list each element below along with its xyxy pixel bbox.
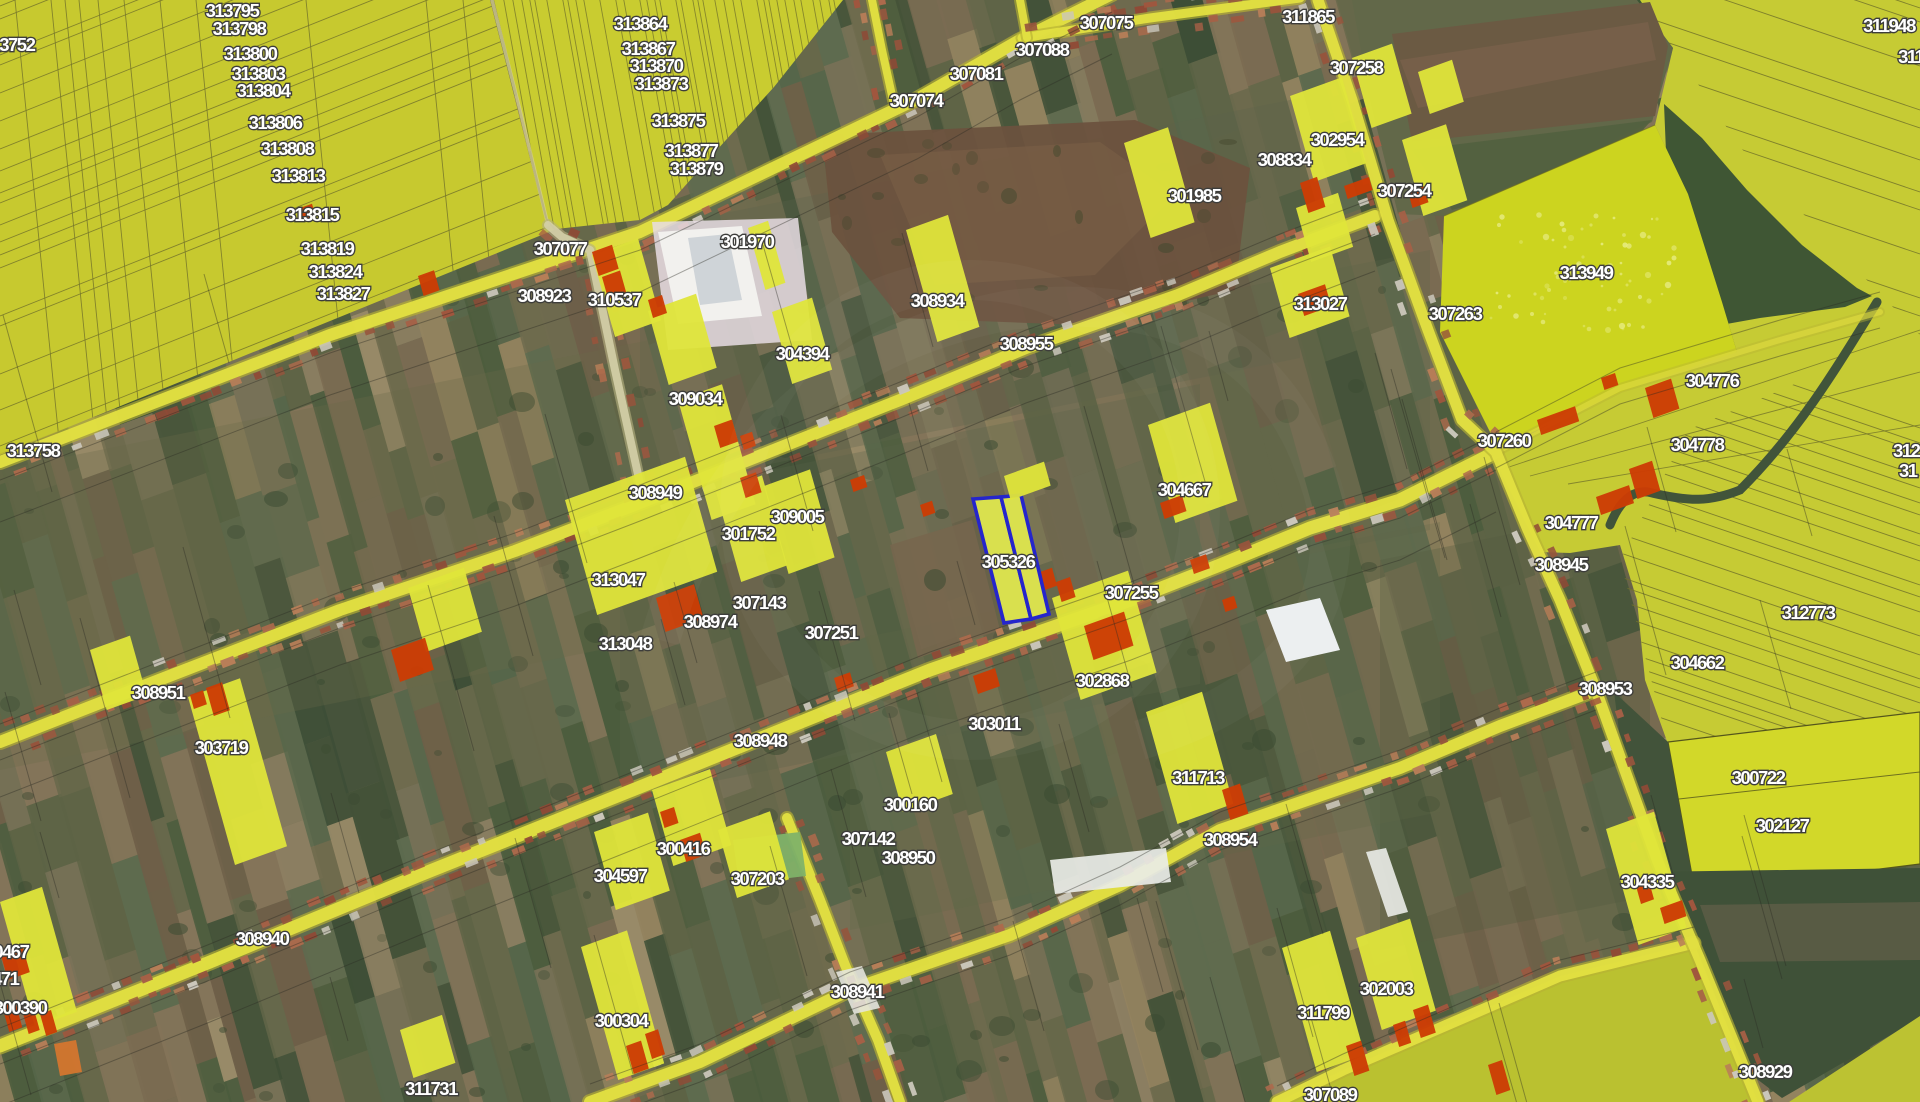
- svg-text:308929: 308929: [1739, 1061, 1793, 1082]
- svg-text:308949: 308949: [629, 482, 683, 503]
- svg-text:313819: 313819: [301, 238, 355, 259]
- svg-text:313875: 313875: [652, 110, 706, 131]
- svg-text:308954: 308954: [1204, 829, 1259, 850]
- svg-text:307142: 307142: [842, 828, 896, 849]
- svg-text:313827: 313827: [317, 283, 371, 304]
- svg-text:308945: 308945: [1535, 554, 1589, 575]
- svg-text:311948: 311948: [1863, 15, 1916, 36]
- svg-text:307203: 307203: [731, 868, 785, 889]
- svg-text:308940: 308940: [236, 928, 290, 949]
- svg-text:303719: 303719: [195, 737, 249, 758]
- svg-text:313758: 313758: [7, 440, 61, 461]
- svg-text:300471: 300471: [0, 968, 20, 989]
- svg-text:308934: 308934: [911, 290, 966, 311]
- svg-text:308950: 308950: [882, 847, 936, 868]
- svg-text:301970: 301970: [721, 231, 775, 252]
- svg-text:307260: 307260: [1478, 430, 1532, 451]
- svg-text:313804: 313804: [237, 80, 292, 101]
- svg-text:313798: 313798: [213, 18, 267, 39]
- svg-text:305326: 305326: [982, 551, 1036, 572]
- svg-text:313949: 313949: [1560, 262, 1614, 283]
- svg-text:311713: 311713: [1172, 767, 1225, 788]
- svg-text:312: 312: [1893, 440, 1920, 461]
- svg-text:302868: 302868: [1076, 670, 1130, 691]
- svg-text:307251: 307251: [805, 622, 859, 643]
- svg-text:308953: 308953: [1579, 678, 1633, 699]
- svg-text:308941: 308941: [831, 981, 885, 1002]
- svg-text:313824: 313824: [309, 261, 364, 282]
- svg-text:313752: 313752: [0, 34, 36, 55]
- svg-text:304394: 304394: [776, 343, 831, 364]
- svg-text:311731: 311731: [405, 1078, 458, 1099]
- svg-text:307143: 307143: [733, 592, 787, 613]
- svg-text:307075: 307075: [1080, 12, 1134, 33]
- svg-text:313864: 313864: [614, 13, 669, 34]
- svg-text:308834: 308834: [1258, 149, 1313, 170]
- svg-text:307077: 307077: [534, 238, 588, 259]
- svg-text:307263: 307263: [1429, 303, 1483, 324]
- svg-text:313806: 313806: [249, 112, 303, 133]
- svg-text:308948: 308948: [734, 730, 788, 751]
- svg-text:307258: 307258: [1330, 57, 1384, 78]
- svg-text:304777: 304777: [1545, 512, 1599, 533]
- svg-text:313815: 313815: [286, 204, 340, 225]
- svg-text:300416: 300416: [657, 838, 711, 859]
- svg-text:313873: 313873: [635, 73, 689, 94]
- svg-text:300304: 300304: [595, 1010, 650, 1031]
- svg-text:313047: 313047: [592, 569, 646, 590]
- svg-text:304778: 304778: [1671, 434, 1725, 455]
- svg-text:304662: 304662: [1671, 652, 1725, 673]
- svg-text:313813: 313813: [272, 165, 326, 186]
- svg-text:304776: 304776: [1686, 370, 1740, 391]
- svg-text:301985: 301985: [1168, 185, 1222, 206]
- svg-text:301752: 301752: [722, 523, 776, 544]
- svg-text:308951: 308951: [132, 682, 186, 703]
- svg-text:313027: 313027: [1294, 293, 1348, 314]
- svg-text:307074: 307074: [890, 90, 945, 111]
- svg-text:309034: 309034: [669, 388, 724, 409]
- svg-text:302003: 302003: [1360, 978, 1414, 999]
- svg-text:311799: 311799: [1297, 1002, 1350, 1023]
- svg-text:313800: 313800: [224, 43, 278, 64]
- svg-text:304597: 304597: [594, 865, 648, 886]
- svg-text:308955: 308955: [1000, 333, 1054, 354]
- svg-text:303011: 303011: [968, 713, 1021, 734]
- svg-text:310537: 310537: [588, 289, 642, 310]
- svg-text:307081: 307081: [950, 63, 1004, 84]
- svg-text:307254: 307254: [1378, 180, 1433, 201]
- svg-text:308923: 308923: [518, 285, 572, 306]
- svg-text:300722: 300722: [1732, 767, 1786, 788]
- svg-text:313879: 313879: [670, 158, 724, 179]
- svg-text:311949: 311949: [1898, 46, 1920, 67]
- svg-text:307088: 307088: [1016, 39, 1070, 60]
- svg-text:313808: 313808: [261, 138, 315, 159]
- svg-text:300467: 300467: [0, 941, 30, 962]
- svg-text:304667: 304667: [1158, 479, 1212, 500]
- svg-text:31: 31: [1899, 460, 1918, 481]
- svg-text:307255: 307255: [1105, 582, 1159, 603]
- svg-text:313048: 313048: [599, 633, 653, 654]
- svg-text:308974: 308974: [684, 611, 739, 632]
- svg-text:309005: 309005: [771, 506, 825, 527]
- svg-text:312773: 312773: [1782, 602, 1836, 623]
- svg-text:302127: 302127: [1756, 815, 1810, 836]
- svg-text:300160: 300160: [884, 794, 938, 815]
- svg-text:302954: 302954: [1311, 129, 1366, 150]
- svg-text:304335: 304335: [1621, 871, 1675, 892]
- svg-text:300390: 300390: [0, 997, 48, 1018]
- svg-text:307089: 307089: [1304, 1084, 1358, 1102]
- svg-text:311865: 311865: [1282, 6, 1335, 27]
